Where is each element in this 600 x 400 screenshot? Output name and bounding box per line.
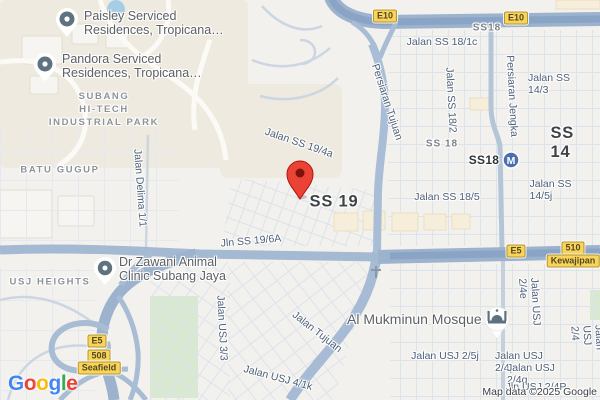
poi-label-dr-zawani[interactable]: Dr Zawani Animal Clinic Subang Jaya xyxy=(119,255,226,283)
exit-badge-kewajipan: Kewajipan xyxy=(547,255,600,268)
road-label-persiaran-jengka: Persiaran Jengka xyxy=(504,55,520,137)
google-logo-letter: e xyxy=(66,372,77,395)
google-logo[interactable]: Google xyxy=(8,372,77,396)
road-label-jalan-ss-14-5j: Jalan SS 14/5j xyxy=(530,178,577,202)
road-label-jalan-delima-1-1: Jalan Delima 1/1 xyxy=(131,149,148,228)
road-label-jalan-usj-2-4: Jalan USJ 2/4 xyxy=(568,325,600,352)
route-badge-e10-east: E10 xyxy=(504,12,528,25)
route-badge-510: 510 xyxy=(561,242,584,255)
google-logo-letter: o xyxy=(36,372,48,395)
district-label-ss18-mid: SS 18 xyxy=(426,139,458,150)
exit-badge-seafield: Seafield xyxy=(78,362,121,375)
area-label-batu-gugup: BATU GUGUP xyxy=(20,165,99,178)
map-labels-layer: Paisley Serviced Residences, Tropicana…P… xyxy=(0,0,600,400)
google-logo-letter: G xyxy=(8,372,24,395)
road-label-jalan-usj-2-5j: Jalan USJ 2/5j xyxy=(411,350,479,362)
station-label-ss18[interactable]: SS18 xyxy=(469,153,500,167)
poi-label-pandora[interactable]: Pandora Serviced Residences, Tropicana… xyxy=(62,52,202,80)
road-label-jalan-ss-19-4a: Jalan SS 19/4a xyxy=(263,126,334,161)
map-canvas[interactable]: M Paisley Serviced Residences, Tropicana… xyxy=(0,0,600,400)
route-badge-e5-seafield: E5 xyxy=(87,335,106,348)
google-logo-letter: g xyxy=(49,372,61,395)
district-label-ss14: SS 14 xyxy=(551,124,584,162)
road-label-jalan-ss-14-3: Jalan SS 14/3 xyxy=(528,72,576,96)
road-label-jalan-ss-18-1c: Jalan SS 18/1c xyxy=(407,36,478,48)
road-label-jalan-usj-4-1k: Jalan USJ 4/1k xyxy=(242,363,313,393)
map-attribution[interactable]: Map data ©2025 Google xyxy=(482,386,597,398)
road-label-persiaran-tujuan: Persiaran Tujuan xyxy=(369,62,405,141)
area-label-subang-hitech: SUBANG HI-TECH INDUSTRIAL PARK xyxy=(49,91,159,129)
route-badge-e10-west: E10 xyxy=(373,10,397,23)
route-badge-e5-kewajipan: E5 xyxy=(506,245,525,258)
area-label-usj-heights: USJ HEIGHTS xyxy=(10,277,91,290)
road-label-jalan-ss-18-2: Jalan SS 18/2 xyxy=(443,67,458,133)
district-label-ss19: SS 19 xyxy=(310,193,359,212)
poi-label-mosque[interactable]: Al Mukminun Mosque xyxy=(347,311,482,327)
district-label-ss18-top: SS18 xyxy=(473,23,501,34)
road-label-jalan-usj-3-3: Jalan USJ 3/3 xyxy=(214,295,229,361)
google-logo-letter: o xyxy=(24,372,36,395)
road-label-jln-ss-19-6a: Jln SS 19/6A xyxy=(220,232,282,249)
poi-label-paisley[interactable]: Paisley Serviced Residences, Tropicana… xyxy=(84,9,224,37)
road-label-jalan-usj-2-4e: Jalan USJ 2/4e xyxy=(516,277,544,348)
road-label-jalan-ss-18-5: Jalan SS 18/5 xyxy=(414,191,479,203)
road-label-jalan-tujuan: Jalan Tujuan xyxy=(290,309,344,355)
